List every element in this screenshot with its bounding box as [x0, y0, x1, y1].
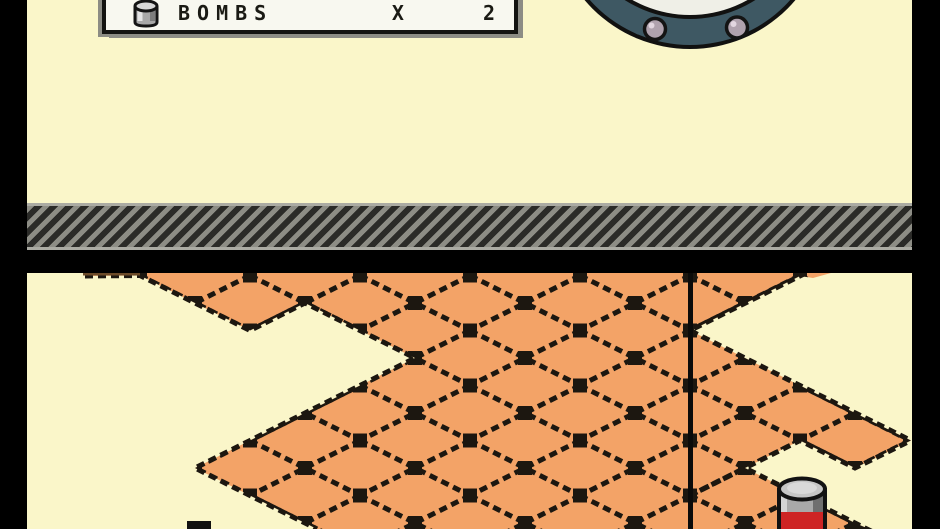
porthole-rivet-left [645, 19, 666, 40]
top-screen: BOMBS X 2 [27, 0, 912, 203]
canister-lid [787, 482, 817, 494]
multiplier-symbol: X [392, 0, 411, 25]
bombs-counter-box: BOMBS X 2 [102, 0, 518, 34]
bomb-canister[interactable] [779, 479, 825, 529]
porthole-hatch-icon [552, 0, 828, 49]
bomb-canister-icon [128, 0, 164, 30]
cutoff-sprite [187, 521, 211, 529]
tile-top-trim [83, 273, 140, 276]
vertical-line [688, 273, 693, 529]
canister-red-band [781, 512, 823, 529]
frame-left [0, 0, 27, 529]
bottom-touch-screen[interactable] [27, 273, 912, 529]
hazard-stripes-bar [27, 203, 912, 250]
ds-screenshot: BOMBS X 2 [0, 0, 940, 529]
bombs-count: 2 [483, 0, 502, 25]
porthole-rivet-right [727, 17, 748, 38]
bombs-label: BOMBS [178, 0, 273, 25]
frame-right [912, 0, 940, 529]
